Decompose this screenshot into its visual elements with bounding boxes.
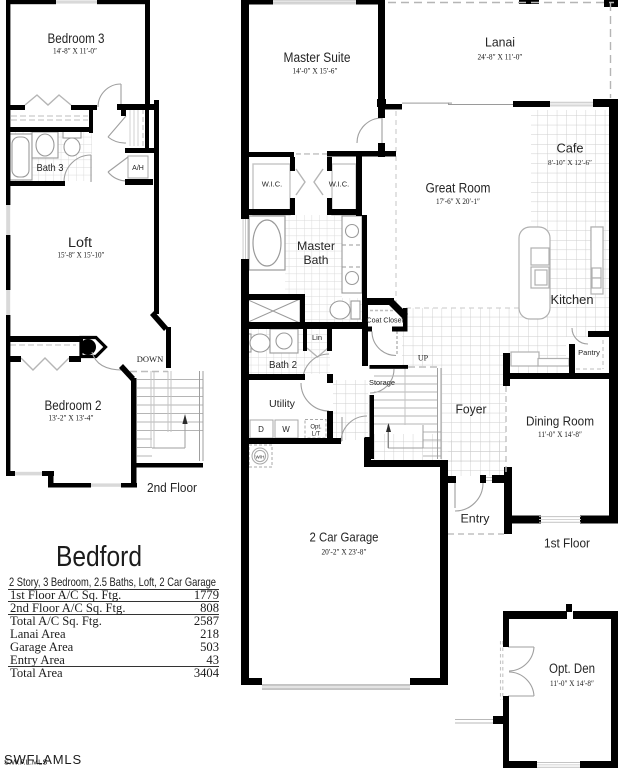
svg-text:Garage Area: Garage Area xyxy=(10,640,74,654)
svg-text:11′-0″ X 14′-8″: 11′-0″ X 14′-8″ xyxy=(550,678,594,688)
svg-text:Dining Room: Dining Room xyxy=(526,414,594,429)
svg-text:218: 218 xyxy=(200,627,219,641)
svg-text:503: 503 xyxy=(200,640,219,654)
svg-text:Utility: Utility xyxy=(269,398,296,410)
svg-text:2nd Floor A/C Sq. Ftg.: 2nd Floor A/C Sq. Ftg. xyxy=(10,601,125,615)
svg-text:Total A/C Sq. Ftg.: Total A/C Sq. Ftg. xyxy=(10,614,102,628)
svg-text:Bath: Bath xyxy=(304,253,329,267)
svg-text:14′-0″ X 15′-6″: 14′-0″ X 15′-6″ xyxy=(293,66,338,76)
svg-text:2 Car Garage: 2 Car Garage xyxy=(310,530,379,545)
svg-text:24′-8″ X 11′-0″: 24′-8″ X 11′-0″ xyxy=(478,53,523,62)
svg-text:Lin: Lin xyxy=(312,333,322,342)
svg-text:2587: 2587 xyxy=(194,614,219,628)
svg-text:1st Floor A/C Sq. Ftg.: 1st Floor A/C Sq. Ftg. xyxy=(10,588,121,602)
svg-text:Coat Closet: Coat Closet xyxy=(367,316,405,325)
svg-text:Foyer: Foyer xyxy=(456,402,488,417)
svg-text:Bedford: Bedford xyxy=(56,541,142,573)
svg-text:W/H: W/H xyxy=(256,455,265,460)
svg-text:Total Area: Total Area xyxy=(10,666,63,680)
svg-text:D: D xyxy=(258,425,264,434)
svg-text:14′-8″ X 11′-0″: 14′-8″ X 11′-0″ xyxy=(53,46,97,56)
svg-text:Cafe: Cafe xyxy=(557,141,584,156)
svg-text:Kitchen: Kitchen xyxy=(551,292,594,307)
svg-text:Great Room: Great Room xyxy=(426,181,491,196)
svg-text:W.I.C.: W.I.C. xyxy=(329,180,349,189)
svg-text:808: 808 xyxy=(200,601,219,615)
svg-text:Opt.: Opt. xyxy=(310,425,322,431)
svg-text:8′-10″ X 12′-6″: 8′-10″ X 12′-6″ xyxy=(548,158,592,167)
svg-text:11′-0″ X 14′-8″: 11′-0″ X 14′-8″ xyxy=(538,430,582,439)
svg-text:W.I.C.: W.I.C. xyxy=(262,180,282,189)
svg-text:17′-6″ X 20′-1″: 17′-6″ X 20′-1″ xyxy=(436,196,480,206)
svg-text:Bedroom 3: Bedroom 3 xyxy=(48,31,105,46)
svg-text:20′-2″ X 23′-8″: 20′-2″ X 23′-8″ xyxy=(322,548,367,557)
svg-text:Lanai: Lanai xyxy=(485,35,515,50)
svg-text:Master: Master xyxy=(297,239,335,253)
svg-text:A/H: A/H xyxy=(132,165,144,172)
svg-text:Master Suite: Master Suite xyxy=(284,50,351,65)
svg-text:DOWN: DOWN xyxy=(137,354,163,364)
svg-text:S.W.F.L.MLS: S.W.F.L.MLS xyxy=(4,758,47,767)
svg-text:1st Floor: 1st Floor xyxy=(544,536,591,551)
svg-text:15′-8″ X 15′-10″: 15′-8″ X 15′-10″ xyxy=(58,250,105,260)
svg-text:2 Story, 3 Bedroom, 2.5 Baths,: 2 Story, 3 Bedroom, 2.5 Baths, Loft, 2 C… xyxy=(9,575,216,589)
svg-text:Entry: Entry xyxy=(461,512,490,526)
svg-text:W: W xyxy=(282,425,290,434)
svg-text:Pantry: Pantry xyxy=(578,348,600,357)
svg-text:43: 43 xyxy=(206,653,219,667)
svg-text:Loft: Loft xyxy=(68,235,92,250)
svg-text:13′-2″ X 13′-4″: 13′-2″ X 13′-4″ xyxy=(49,413,94,423)
svg-text:Opt. Den: Opt. Den xyxy=(549,661,595,676)
svg-text:1779: 1779 xyxy=(194,588,219,602)
svg-text:Lanai Area: Lanai Area xyxy=(10,627,66,641)
svg-text:3404: 3404 xyxy=(194,666,220,680)
svg-text:2nd Floor: 2nd Floor xyxy=(147,480,198,495)
svg-text:L/T: L/T xyxy=(312,432,321,438)
svg-text:Entry Area: Entry Area xyxy=(10,653,65,667)
svg-text:Bath 3: Bath 3 xyxy=(37,162,64,174)
svg-text:UP: UP xyxy=(418,354,429,363)
svg-text:Bedroom 2: Bedroom 2 xyxy=(45,398,102,413)
svg-text:Bath 2: Bath 2 xyxy=(269,359,297,371)
svg-text:Storage: Storage xyxy=(369,378,395,387)
